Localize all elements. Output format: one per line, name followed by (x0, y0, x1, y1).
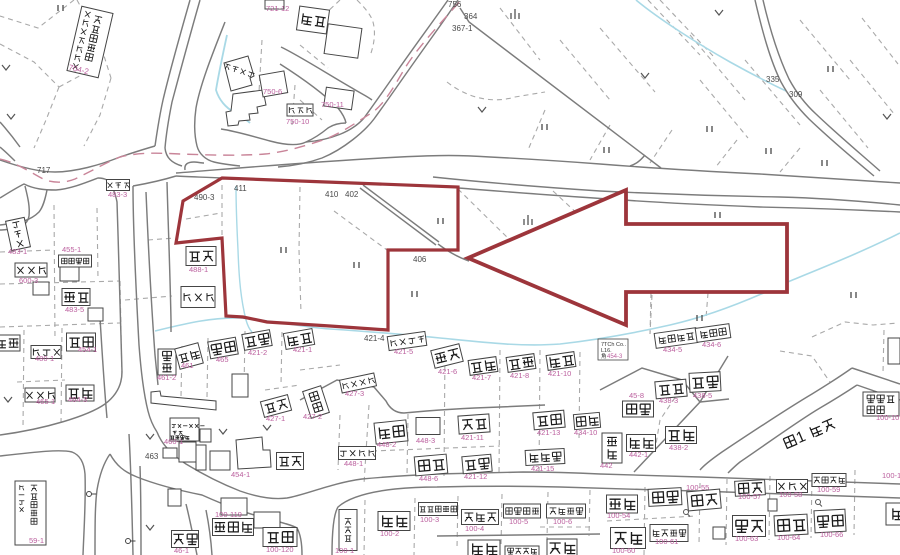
svg-text:483-1: 483-1 (8, 247, 27, 256)
svg-text:454-3: 454-3 (607, 354, 623, 360)
svg-text:750-10: 750-10 (286, 117, 309, 126)
svg-text:438-5: 438-5 (693, 391, 712, 400)
svg-text:335: 335 (766, 75, 780, 84)
svg-text:427-3: 427-3 (345, 389, 364, 398)
svg-text:46-1: 46-1 (174, 546, 189, 555)
svg-text:750-6: 750-6 (263, 87, 282, 96)
svg-text:59-1: 59-1 (29, 536, 44, 545)
svg-text:434-10: 434-10 (574, 428, 597, 437)
svg-text:角: 角 (601, 352, 607, 360)
svg-text:100-10: 100-10 (876, 413, 899, 422)
svg-text:100-119: 100-119 (215, 510, 242, 519)
svg-text:455-1: 455-1 (62, 245, 81, 254)
svg-text:442: 442 (600, 461, 613, 470)
svg-text:465-1: 465-1 (36, 397, 55, 406)
svg-text:406: 406 (413, 255, 427, 264)
svg-text:721-12: 721-12 (266, 4, 289, 13)
svg-text:421-13: 421-13 (537, 428, 560, 437)
svg-text:448-6: 448-6 (419, 474, 438, 483)
svg-text:427-2: 427-2 (303, 412, 322, 421)
svg-text:421-4: 421-4 (364, 334, 385, 343)
svg-text:442-1: 442-1 (629, 450, 648, 459)
svg-text:100-11: 100-11 (882, 471, 900, 480)
svg-text:100-54: 100-54 (607, 511, 630, 520)
svg-text:421-10: 421-10 (548, 369, 571, 378)
svg-text:100-57: 100-57 (738, 492, 761, 501)
svg-text:438-2: 438-2 (669, 443, 688, 452)
svg-text:448-2: 448-2 (377, 440, 396, 449)
svg-text:100-4: 100-4 (465, 524, 484, 533)
svg-text:45-8: 45-8 (629, 391, 644, 400)
svg-text:756: 756 (448, 0, 462, 9)
svg-text:100-120: 100-120 (266, 545, 294, 554)
svg-text:100-63: 100-63 (735, 534, 758, 543)
svg-text:367-1: 367-1 (452, 24, 473, 33)
svg-text:421-15: 421-15 (531, 464, 554, 473)
svg-text:750-11: 750-11 (321, 100, 344, 109)
svg-text:364: 364 (464, 12, 478, 21)
svg-text:454-1: 454-1 (231, 470, 250, 479)
svg-text:421-5: 421-5 (394, 347, 413, 356)
svg-text:421-11: 421-11 (461, 433, 484, 442)
svg-text:448-3: 448-3 (416, 436, 435, 445)
svg-text:421-7: 421-7 (472, 373, 491, 382)
svg-text:461-2: 461-2 (157, 373, 176, 382)
svg-text:480-1: 480-1 (35, 354, 54, 363)
svg-text:421-12: 421-12 (464, 472, 487, 481)
svg-text:434-5: 434-5 (663, 345, 682, 354)
svg-text:427-1: 427-1 (266, 414, 285, 423)
svg-text:454-1: 454-1 (78, 345, 97, 354)
svg-text:434-6: 434-6 (702, 340, 721, 349)
svg-text:483-5: 483-5 (65, 305, 84, 314)
svg-text:100-58: 100-58 (779, 490, 802, 499)
svg-text:438-3: 438-3 (659, 396, 678, 405)
svg-text:464-3: 464-3 (68, 395, 87, 404)
svg-text:411: 411 (234, 184, 247, 193)
svg-text:100-2: 100-2 (380, 529, 399, 538)
svg-text:600-3: 600-3 (19, 276, 38, 285)
svg-text:488-1: 488-1 (189, 265, 208, 274)
svg-text:465: 465 (216, 355, 229, 364)
svg-text:100-59: 100-59 (817, 485, 840, 494)
svg-text:461: 461 (181, 361, 194, 370)
svg-text:100-60: 100-60 (612, 546, 635, 555)
svg-text:402: 402 (345, 190, 359, 199)
svg-text:421-8: 421-8 (510, 371, 529, 380)
svg-text:410: 410 (325, 190, 339, 199)
svg-text:100-5: 100-5 (509, 517, 528, 526)
svg-text:421-2: 421-2 (248, 348, 267, 357)
svg-text:100-64: 100-64 (777, 533, 800, 542)
svg-text:463: 463 (145, 452, 159, 461)
svg-text:448-1: 448-1 (344, 459, 363, 468)
svg-text:421-6: 421-6 (438, 367, 457, 376)
svg-text:717: 717 (37, 166, 51, 175)
svg-text:100-1: 100-1 (335, 546, 354, 555)
svg-text:100-61: 100-61 (655, 537, 678, 546)
svg-text:100-3: 100-3 (420, 515, 439, 524)
svg-text:421-1: 421-1 (293, 345, 312, 354)
svg-text:483-3: 483-3 (108, 190, 127, 199)
svg-text:309: 309 (789, 90, 803, 99)
svg-text:100-66: 100-66 (820, 530, 843, 539)
svg-text:100-6: 100-6 (553, 517, 572, 526)
